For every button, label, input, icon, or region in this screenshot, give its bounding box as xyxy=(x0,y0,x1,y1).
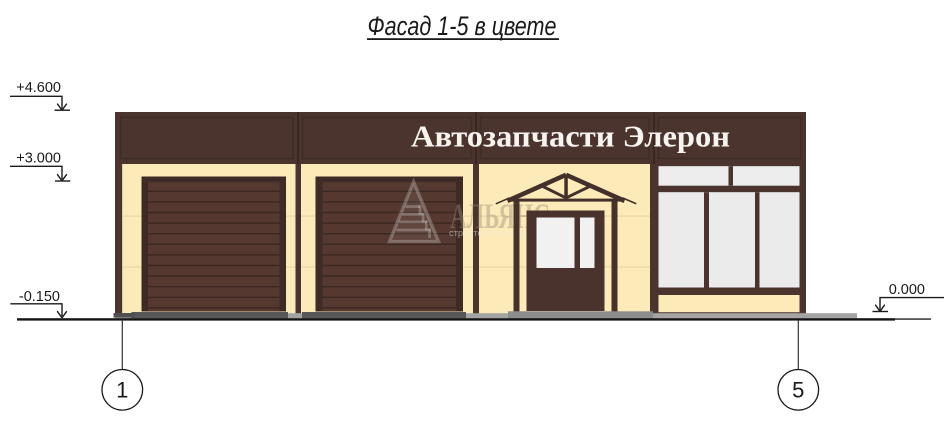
svg-text:0.000: 0.000 xyxy=(889,282,925,298)
svg-text:Автозапчасти Элерон: Автозапчасти Элерон xyxy=(411,119,730,154)
svg-text:Фасад 1-5 в цвете: Фасад 1-5 в цвете xyxy=(368,11,557,41)
svg-text:5: 5 xyxy=(792,378,804,403)
svg-text:-0.150: -0.150 xyxy=(19,289,60,305)
svg-text:+3.000: +3.000 xyxy=(16,151,61,167)
svg-text:+4.600: +4.600 xyxy=(16,80,61,96)
svg-text:1: 1 xyxy=(116,378,128,403)
